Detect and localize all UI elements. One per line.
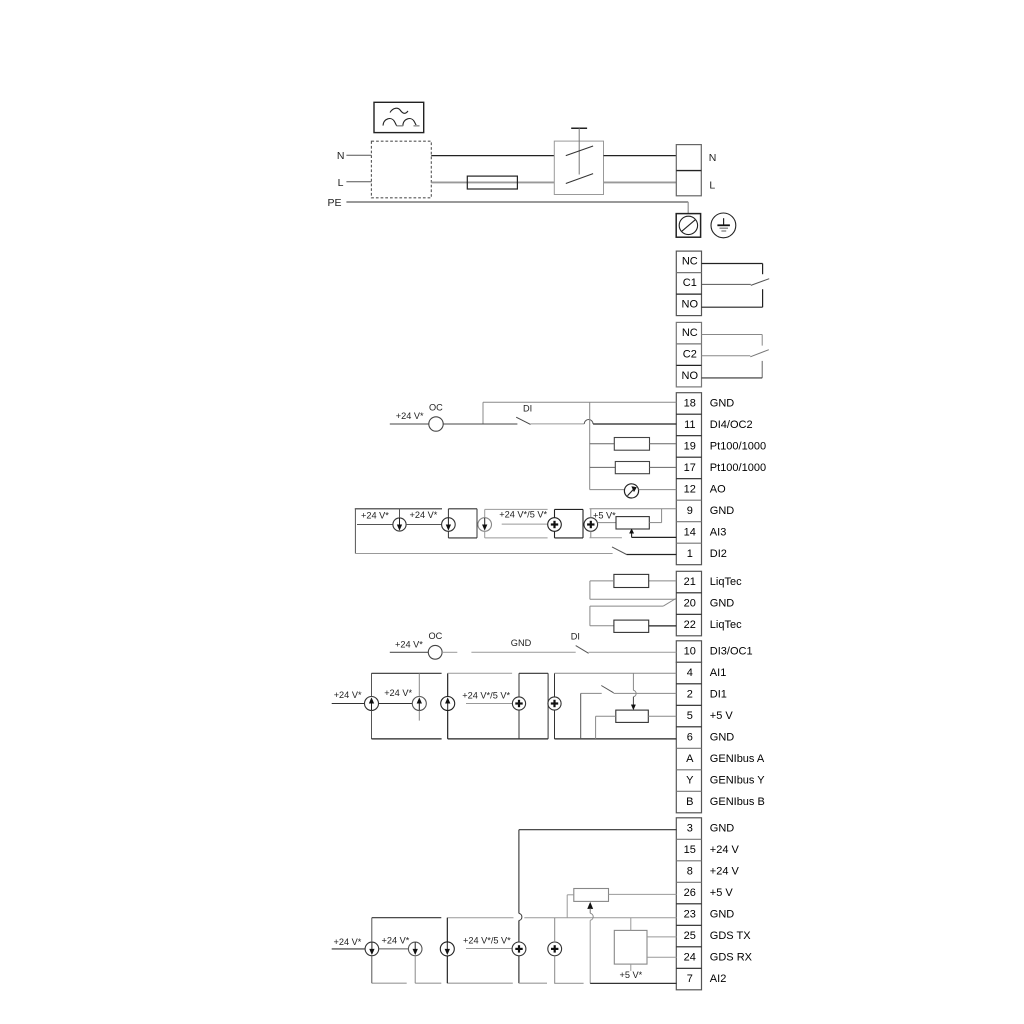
svg-text:N: N xyxy=(709,152,717,164)
svg-text:19: 19 xyxy=(684,440,696,452)
svg-text:C2: C2 xyxy=(683,348,697,360)
svg-text:GENIbus Y: GENIbus Y xyxy=(710,774,765,786)
svg-text:AI3: AI3 xyxy=(710,526,727,538)
svg-text:NO: NO xyxy=(682,299,699,311)
svg-text:+5 V*: +5 V* xyxy=(620,970,643,980)
svg-text:11: 11 xyxy=(684,419,695,431)
svg-text:17: 17 xyxy=(684,462,696,474)
svg-text:NO: NO xyxy=(682,370,699,382)
svg-text:OC: OC xyxy=(429,402,443,412)
svg-text:+24 V: +24 V xyxy=(710,844,740,856)
svg-text:23: 23 xyxy=(684,908,696,920)
svg-text:GND: GND xyxy=(710,731,735,743)
svg-text:+24 V*: +24 V* xyxy=(334,690,362,700)
svg-text:26: 26 xyxy=(684,887,696,899)
svg-text:4: 4 xyxy=(687,667,693,679)
svg-text:+24 V*: +24 V* xyxy=(410,510,438,520)
svg-text:+24 V*: +24 V* xyxy=(334,937,362,947)
svg-text:2: 2 xyxy=(687,688,693,700)
svg-text:PE: PE xyxy=(327,197,341,209)
svg-text:DI: DI xyxy=(571,631,580,641)
svg-text:A: A xyxy=(686,753,694,765)
svg-text:GENIbus A: GENIbus A xyxy=(710,753,765,765)
svg-text:10: 10 xyxy=(684,645,696,657)
svg-text:GND: GND xyxy=(710,397,735,409)
svg-text:AI1: AI1 xyxy=(710,667,727,679)
svg-text:L: L xyxy=(709,180,715,192)
svg-text:+24 V*: +24 V* xyxy=(395,640,423,650)
svg-text:GND: GND xyxy=(710,822,735,834)
svg-text:+5 V: +5 V xyxy=(710,887,734,899)
svg-text:15: 15 xyxy=(684,844,696,856)
svg-text:14: 14 xyxy=(684,526,696,538)
svg-text:L: L xyxy=(338,177,344,189)
svg-text:OC: OC xyxy=(429,631,443,641)
svg-text:12: 12 xyxy=(684,483,696,495)
svg-text:1: 1 xyxy=(687,548,693,560)
svg-text:C1: C1 xyxy=(683,277,697,289)
svg-text:LiqTec: LiqTec xyxy=(710,576,742,588)
svg-text:Pt100/1000: Pt100/1000 xyxy=(710,462,766,474)
svg-text:NC: NC xyxy=(682,327,698,339)
svg-text:21: 21 xyxy=(684,576,696,588)
svg-text:7: 7 xyxy=(687,973,693,985)
svg-text:AI2: AI2 xyxy=(710,973,727,985)
svg-text:3: 3 xyxy=(687,822,693,834)
svg-text:+24 V: +24 V xyxy=(710,865,740,877)
svg-text:+24 V*/5 V*: +24 V*/5 V* xyxy=(499,510,547,520)
svg-text:+24 V*: +24 V* xyxy=(384,688,412,698)
svg-text:+5 V*: +5 V* xyxy=(593,510,616,520)
svg-text:25: 25 xyxy=(684,930,696,942)
svg-text:5: 5 xyxy=(687,710,693,722)
svg-text:+24 V*: +24 V* xyxy=(382,936,410,946)
svg-text:Pt100/1000: Pt100/1000 xyxy=(710,440,766,452)
svg-text:18: 18 xyxy=(684,397,696,409)
svg-text:+24 V*: +24 V* xyxy=(361,510,389,520)
svg-text:DI1: DI1 xyxy=(710,688,727,700)
svg-text:+24 V*/5 V*: +24 V*/5 V* xyxy=(462,691,510,701)
svg-text:6: 6 xyxy=(687,731,693,743)
svg-text:22: 22 xyxy=(684,619,696,631)
svg-text:AO: AO xyxy=(710,483,726,495)
svg-text:20: 20 xyxy=(684,597,696,609)
svg-text:GDS RX: GDS RX xyxy=(710,951,753,963)
svg-text:DI4/OC2: DI4/OC2 xyxy=(710,419,753,431)
svg-text:DI: DI xyxy=(523,403,532,413)
svg-text:8: 8 xyxy=(687,865,693,877)
svg-text:+24 V*/5 V*: +24 V*/5 V* xyxy=(463,936,511,946)
svg-text:DI2: DI2 xyxy=(710,548,727,560)
svg-text:GND: GND xyxy=(710,908,735,920)
svg-text:B: B xyxy=(686,796,693,808)
svg-text:24: 24 xyxy=(684,951,696,963)
svg-text:Y: Y xyxy=(686,774,694,786)
svg-text:GND: GND xyxy=(710,505,735,517)
svg-text:GND: GND xyxy=(511,638,532,648)
svg-text:N: N xyxy=(337,150,345,162)
svg-text:GND: GND xyxy=(710,597,735,609)
svg-text:GENIbus B: GENIbus B xyxy=(710,796,765,808)
svg-text:+5 V: +5 V xyxy=(710,710,734,722)
svg-text:GDS TX: GDS TX xyxy=(710,930,751,942)
svg-text:LiqTec: LiqTec xyxy=(710,619,742,631)
svg-text:9: 9 xyxy=(687,505,693,517)
svg-text:NC: NC xyxy=(682,256,698,268)
svg-text:DI3/OC1: DI3/OC1 xyxy=(710,645,753,657)
svg-text:+24 V*: +24 V* xyxy=(396,411,424,421)
